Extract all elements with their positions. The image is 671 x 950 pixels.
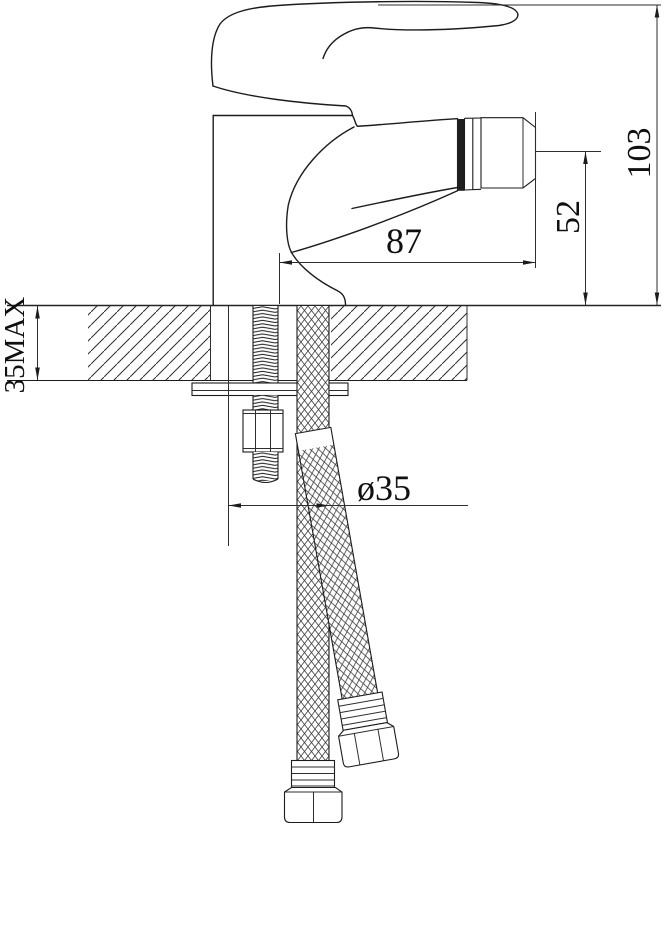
- dim-label-deck-thickness: 35MAX: [0, 297, 31, 394]
- faucet-body: [211, 2, 517, 306]
- vertical-hose-nut: [285, 788, 343, 823]
- spout-underside: [292, 191, 458, 253]
- handle-lever: [211, 2, 517, 87]
- mounting-stud-lower: [243, 396, 283, 483]
- body-front-curve: [287, 127, 354, 253]
- mounting-stud: [253, 306, 278, 383]
- dim-label-overall-height: 103: [621, 128, 658, 179]
- deck-hatch-right: [331, 306, 467, 380]
- aerator-cap: [481, 118, 536, 188]
- dim-label-outlet-height: 52: [550, 200, 587, 234]
- spout-aerator: [458, 118, 536, 191]
- spout-top-edge: [353, 116, 458, 127]
- body-base-curve: [292, 253, 346, 306]
- stud-hex-nut: [243, 410, 283, 452]
- dim-deck-thickness: 35MAX: [0, 297, 40, 394]
- bidet-mixer-installation-drawing: 103 52 87 35MAX ø35: [0, 0, 671, 950]
- aerator-dark-ring: [458, 119, 465, 191]
- technical-drawing-sheet: 103 52 87 35MAX ø35: [0, 0, 671, 950]
- vertical-hose-collar: [292, 761, 335, 790]
- handle-skirt: [213, 86, 353, 115]
- mounting-deck-section: [7, 306, 661, 381]
- aerator-collar: [465, 118, 482, 190]
- dim-label-spout-reach: 87: [386, 221, 422, 261]
- dim-outlet-height: 52: [536, 152, 602, 306]
- dim-label-hole-diameter: ø35: [357, 468, 411, 508]
- deck-hatch-left: [88, 306, 211, 380]
